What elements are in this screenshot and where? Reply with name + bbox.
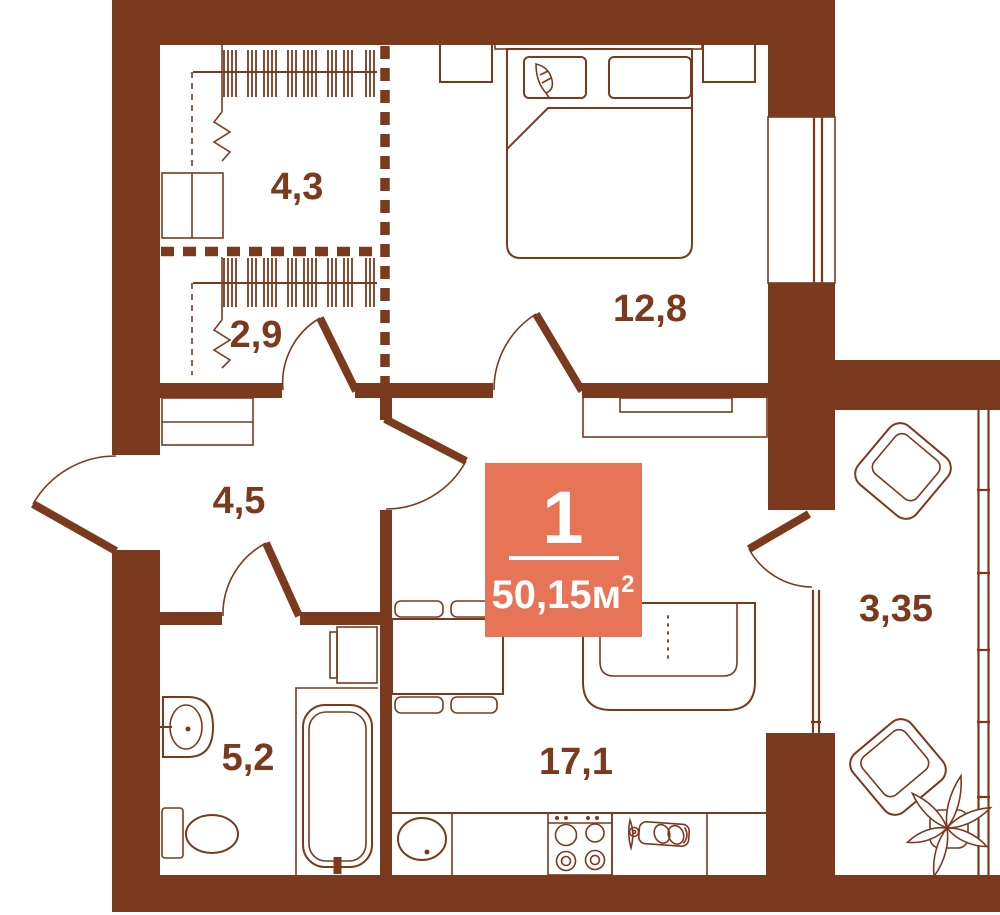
wardrobe-upper-zigzag — [214, 112, 230, 161]
room-label-wardrobe-upper: 4,3 — [271, 166, 324, 208]
room-label-bedroom: 12,8 — [613, 288, 687, 330]
toilet — [162, 808, 238, 858]
room-label-balcony: 3,35 — [859, 588, 933, 630]
bedroom-door — [494, 314, 582, 391]
stove — [548, 813, 612, 875]
wall-top — [112, 0, 835, 45]
floor-plan: 4,3 2,9 4,5 12,8 3,35 5,2 17,1 1 50,15м2 — [0, 0, 1000, 915]
kitchen-furniture — [392, 813, 766, 875]
balcony-furniture — [844, 417, 992, 877]
balcony-glazing-right — [977, 410, 990, 875]
wall-bathroom-top-b — [300, 612, 392, 625]
room-label-wardrobe-lower: 2,9 — [230, 314, 283, 356]
bed-blanket-fold — [507, 108, 692, 149]
floor-plan-page: 4,3 2,9 4,5 12,8 3,35 5,2 17,1 1 50,15м2 — [0, 0, 1000, 915]
wardrobe-upper-furniture — [162, 45, 377, 238]
room-label-bathroom: 5,2 — [222, 737, 275, 779]
area-badge-room-count: 1 — [542, 476, 583, 559]
room-label-hallway: 4,5 — [213, 480, 266, 522]
wall-living-balcony-upper — [768, 410, 835, 510]
wall-left-lower — [112, 550, 160, 875]
bedroom-furniture — [440, 41, 755, 258]
wall-bedroom-bottom-a — [392, 383, 493, 398]
nightstand-left — [440, 42, 492, 82]
wall-left-upper — [112, 45, 160, 455]
balcony-armchair-bottom — [844, 713, 951, 820]
bathroom-sink — [160, 697, 213, 757]
feather-icon — [536, 64, 552, 99]
balcony-door — [749, 514, 812, 587]
bedroom-window — [768, 117, 835, 283]
entrance-door — [33, 456, 116, 551]
room-label-kitchen-living: 17,1 — [539, 741, 613, 783]
wall-bedroom-bottom-b — [582, 383, 770, 398]
wall-hall-top-b — [355, 383, 392, 398]
tv-stand — [583, 397, 767, 437]
balcony-armchair-top — [849, 417, 956, 524]
balcony-door-arc — [749, 549, 812, 587]
cutting-board-icon — [629, 820, 690, 848]
chair — [395, 697, 443, 713]
bed-outline — [507, 49, 692, 258]
wardrobe-lower-door-arc — [283, 318, 320, 390]
kitchen-sink — [398, 818, 446, 860]
wall-bathroom-top-a — [160, 612, 222, 625]
bed-pillow-right — [609, 57, 691, 98]
wardrobe-lower-door — [283, 318, 356, 391]
wall-balcony-top — [835, 360, 1000, 410]
wardrobe-upper-hanger-strokes — [224, 50, 374, 97]
entrance-door-leaf — [33, 504, 116, 551]
bathroom-door-leaf — [266, 543, 299, 616]
wall-central-vertical — [380, 510, 392, 875]
wall-hall-top-a — [160, 383, 282, 398]
entrance-door-arc — [33, 456, 116, 504]
wall-right-bedroom-lower — [768, 283, 835, 410]
wardrobe-lower-door-leaf — [320, 318, 356, 391]
bathroom-door — [223, 543, 299, 616]
bathtub — [296, 688, 378, 875]
wardrobe-lower-furniture — [192, 257, 377, 375]
area-badge-area-text: 50,15м2 — [491, 571, 634, 617]
washing-machine — [330, 627, 377, 683]
nightstand-right — [703, 42, 755, 82]
bed-pillow-left — [524, 57, 586, 98]
wall-bottom — [112, 875, 1000, 912]
chair — [395, 601, 443, 617]
wardrobe-lower-zigzag — [214, 320, 230, 368]
wall-hall-living-stub — [380, 398, 392, 420]
chair — [451, 697, 497, 713]
bedroom-door-arc — [494, 314, 536, 390]
hallway-furniture — [162, 398, 253, 445]
wall-right-bedroom-upper — [768, 45, 835, 117]
balcony-door-leaf — [749, 514, 809, 549]
hall-living-door — [385, 419, 466, 509]
hall-living-door-leaf — [385, 419, 466, 461]
area-badge: 1 50,15м2 — [485, 463, 642, 637]
bathroom-door-arc — [223, 543, 266, 616]
hall-living-door-arc — [386, 461, 466, 509]
bedroom-door-leaf — [536, 314, 582, 391]
wall-living-balcony-lower — [766, 733, 835, 875]
living-balcony-glazing — [811, 590, 821, 733]
